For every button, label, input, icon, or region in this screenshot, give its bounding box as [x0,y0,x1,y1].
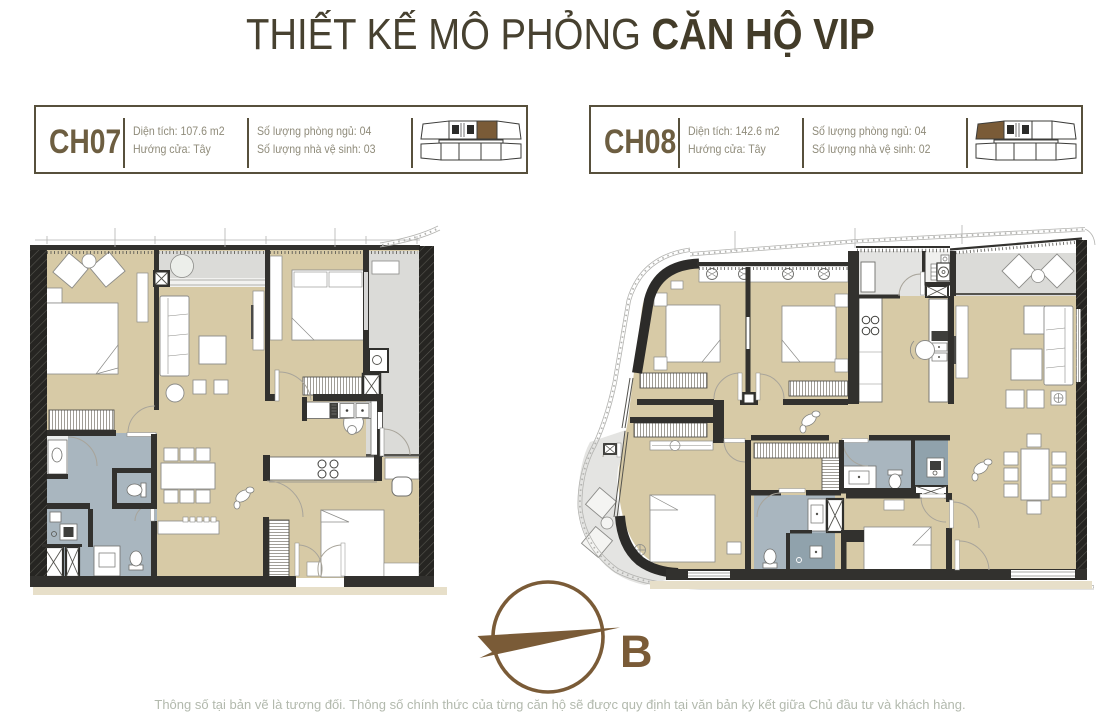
svg-text:B: B [620,626,653,677]
